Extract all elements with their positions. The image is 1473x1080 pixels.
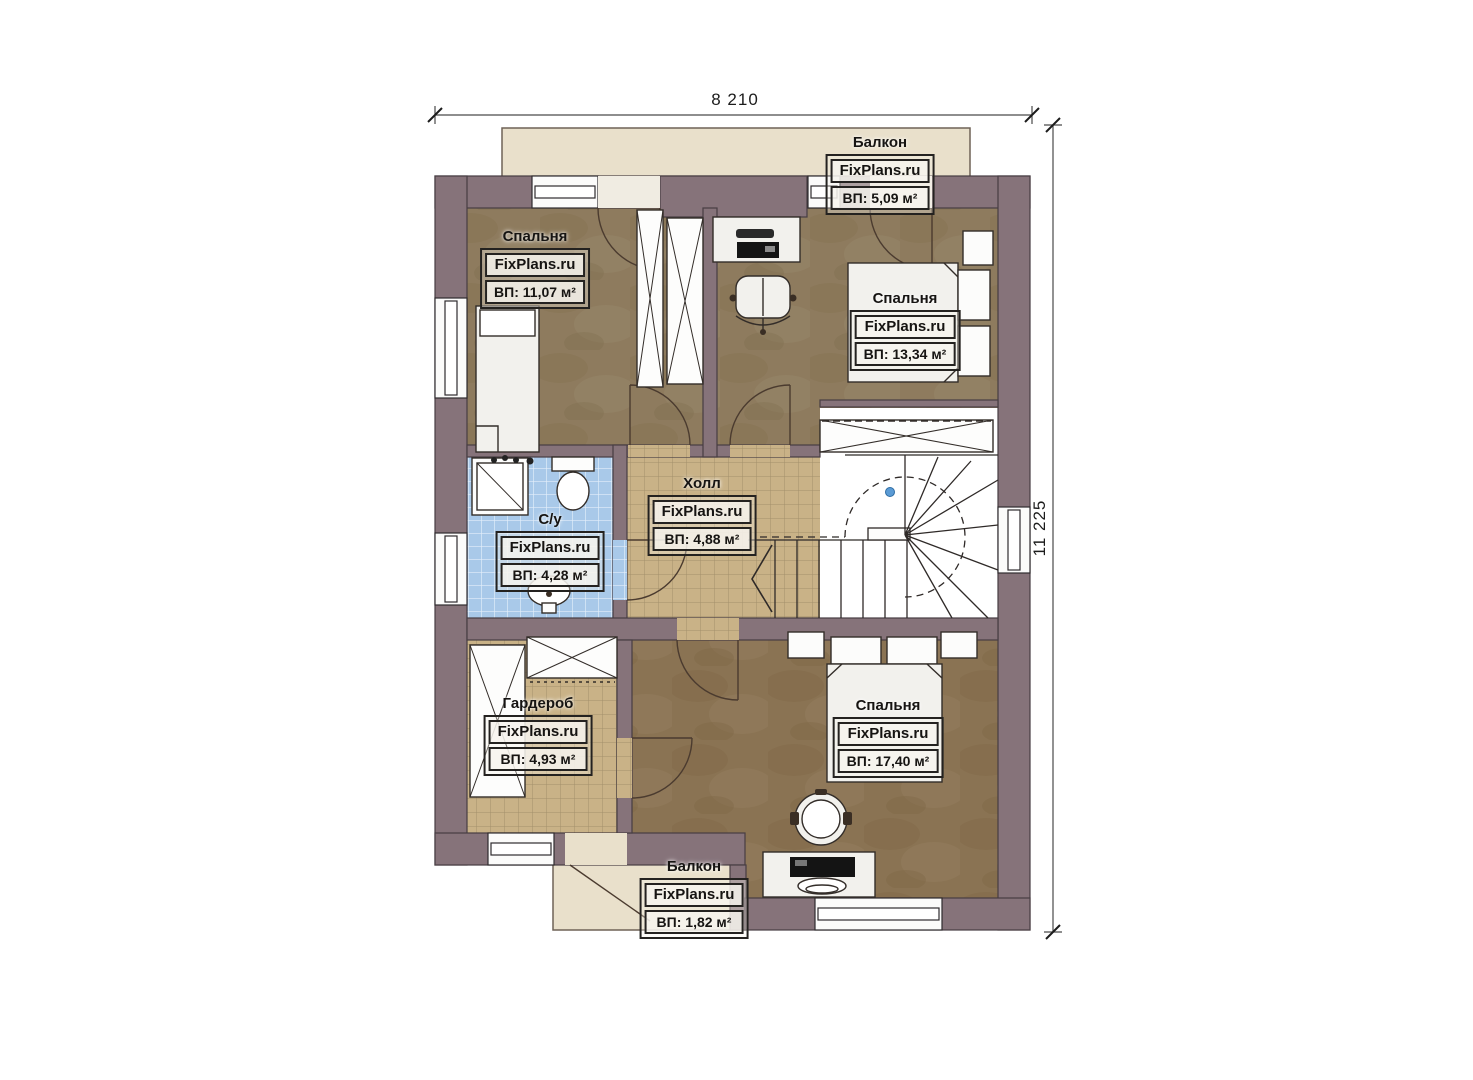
stair-void bbox=[820, 420, 993, 452]
vent-shaft bbox=[637, 210, 663, 387]
floor-plan-page: 8 210 11 225 Балкон FixPlans.ru ВП: 5,09… bbox=[0, 0, 1473, 1080]
room-area: ВП: 4,88 м² bbox=[653, 527, 752, 551]
label-box: FixPlans.ru ВП: 4,93 м² bbox=[484, 715, 593, 776]
fixplans-watermark: FixPlans.ru bbox=[501, 536, 600, 560]
room-label-bedroom-3: Спальня FixPlans.ru ВП: 17,40 м² bbox=[833, 697, 944, 778]
window-bedroom1-top bbox=[532, 176, 598, 208]
room-area: ВП: 5,09 м² bbox=[831, 186, 930, 210]
stair-marker-dot bbox=[886, 488, 895, 497]
room-name: Спальня bbox=[850, 290, 961, 308]
room-label-bedroom-1: Спальня FixPlans.ru ВП: 11,07 м² bbox=[480, 228, 590, 309]
room-label-bedroom-2: Спальня FixPlans.ru ВП: 13,34 м² bbox=[850, 290, 961, 371]
fixplans-watermark: FixPlans.ru bbox=[653, 500, 752, 524]
fixplans-watermark: FixPlans.ru bbox=[831, 159, 930, 183]
fixplans-watermark: FixPlans.ru bbox=[645, 883, 744, 907]
room-area: ВП: 11,07 м² bbox=[485, 280, 585, 304]
room-label-wardrobe: Гардероб FixPlans.ru ВП: 4,93 м² bbox=[484, 695, 593, 776]
label-box: FixPlans.ru ВП: 4,88 м² bbox=[648, 495, 757, 556]
fixplans-watermark: FixPlans.ru bbox=[855, 315, 956, 339]
window-bathroom-left bbox=[435, 533, 467, 605]
room-area: ВП: 13,34 м² bbox=[855, 342, 956, 366]
room-name: Балкон bbox=[826, 134, 935, 152]
dimension-width-label: 8 210 bbox=[711, 90, 759, 110]
window-wardrobe-bottom bbox=[488, 833, 554, 865]
room-label-bathroom: С/у FixPlans.ru ВП: 4,28 м² bbox=[496, 511, 605, 592]
window-bedroom3-bottom bbox=[815, 898, 942, 930]
room-label-balcony-bottom: Балкон FixPlans.ru ВП: 1,82 м² bbox=[640, 858, 749, 939]
label-box: FixPlans.ru ВП: 4,28 м² bbox=[496, 531, 605, 592]
desk-top bbox=[713, 217, 800, 262]
fixplans-watermark: FixPlans.ru bbox=[489, 720, 588, 744]
room-label-balcony-top: Балкон FixPlans.ru ВП: 5,09 м² bbox=[826, 134, 935, 215]
room-label-hall: Холл FixPlans.ru ВП: 4,88 м² bbox=[648, 475, 757, 556]
bed-single bbox=[476, 306, 539, 452]
fixplans-watermark: FixPlans.ru bbox=[485, 253, 585, 277]
label-box: FixPlans.ru ВП: 5,09 м² bbox=[826, 154, 935, 215]
label-box: FixPlans.ru ВП: 13,34 м² bbox=[850, 310, 961, 371]
room-area: ВП: 4,93 м² bbox=[489, 747, 588, 771]
fixplans-watermark: FixPlans.ru bbox=[838, 722, 939, 746]
room-name: Гардероб bbox=[484, 695, 593, 713]
room-name: С/у bbox=[496, 511, 605, 529]
label-box: FixPlans.ru ВП: 11,07 м² bbox=[480, 248, 590, 309]
desk-bottom bbox=[763, 852, 875, 897]
room-name: Холл bbox=[648, 475, 757, 493]
shower bbox=[472, 455, 534, 515]
room-area: ВП: 4,28 м² bbox=[501, 563, 600, 587]
label-box: FixPlans.ru ВП: 17,40 м² bbox=[833, 717, 944, 778]
window-bedroom1-left bbox=[435, 298, 467, 398]
window-stairs-right bbox=[998, 507, 1030, 573]
room-area: ВП: 1,82 м² bbox=[645, 910, 744, 934]
room-name: Спальня bbox=[833, 697, 944, 715]
room-name: Спальня bbox=[480, 228, 590, 246]
room-area: ВП: 17,40 м² bbox=[838, 749, 939, 773]
label-box: FixPlans.ru ВП: 1,82 м² bbox=[640, 878, 749, 939]
wardrobe-cabinet-top bbox=[667, 218, 703, 384]
dimension-height-label: 11 225 bbox=[1030, 500, 1050, 557]
room-name: Балкон bbox=[640, 858, 749, 876]
